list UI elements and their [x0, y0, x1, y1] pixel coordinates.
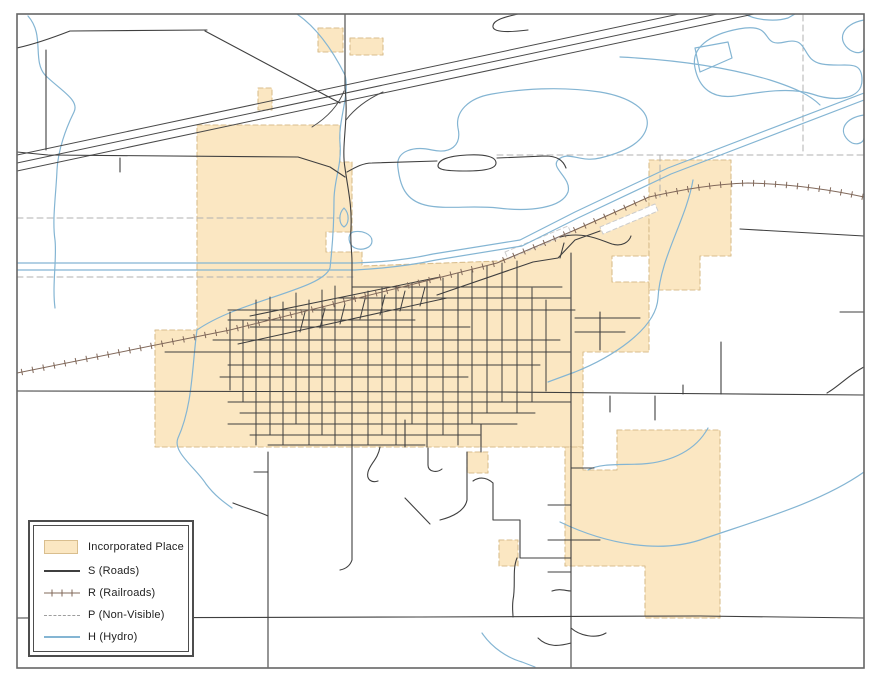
legend-label-hydro: H (Hydro) [88, 631, 137, 643]
legend-inner-border: Incorporated Place S (Roads) R (Railroad… [33, 525, 189, 652]
roads-line-symbol [44, 570, 80, 572]
incorporated-place-swatch [44, 540, 80, 554]
hydro-line-symbol [44, 636, 80, 638]
legend-label-roads: S (Roads) [88, 565, 139, 577]
non-visible-line-symbol [44, 615, 80, 616]
railroads-line-symbol [44, 588, 80, 598]
legend-item-railroads: R (Railroads) [44, 582, 188, 604]
legend-item-incorporated-place: Incorporated Place [44, 534, 188, 560]
map-page: Incorporated Place S (Roads) R (Railroad… [0, 0, 881, 683]
legend-label-incorporated-place: Incorporated Place [88, 541, 184, 553]
legend-label-non-visible: P (Non-Visible) [88, 609, 165, 621]
legend: Incorporated Place S (Roads) R (Railroad… [28, 520, 194, 657]
legend-item-non-visible: P (Non-Visible) [44, 604, 188, 626]
legend-item-roads: S (Roads) [44, 560, 188, 582]
legend-label-railroads: R (Railroads) [88, 587, 155, 599]
legend-item-hydro: H (Hydro) [44, 626, 188, 648]
